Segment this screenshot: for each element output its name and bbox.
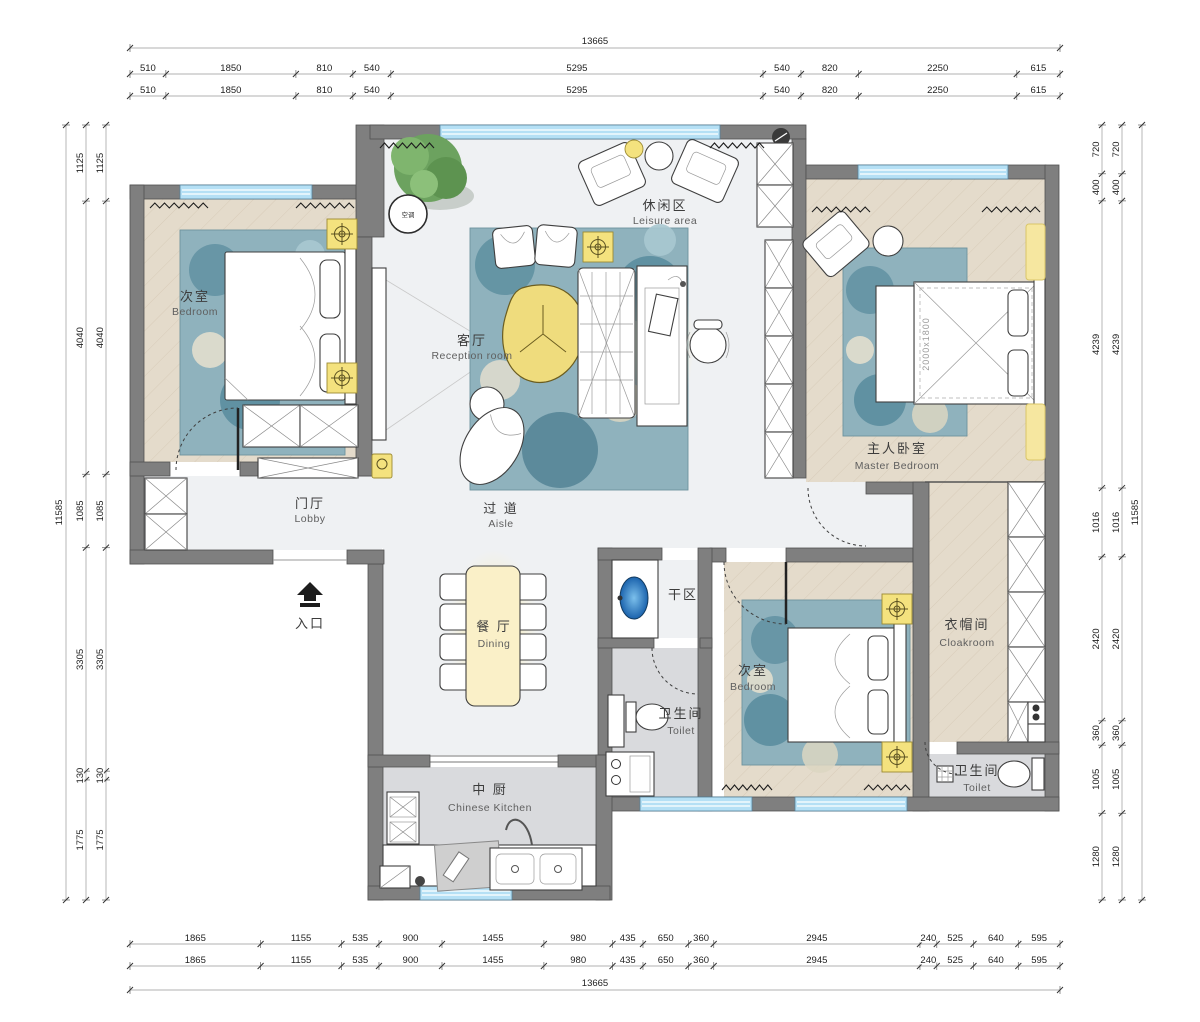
dim-label: 1775: [75, 829, 86, 850]
dim-label: 595: [1031, 933, 1047, 944]
ceiling-light-icon: [882, 594, 912, 624]
ac-unit-icon: 空调: [389, 195, 427, 233]
room-label-zh: 入口: [295, 616, 325, 631]
sliding-door: [430, 756, 558, 762]
dim-label: 510: [140, 85, 156, 96]
room-label-en: Lobby: [294, 513, 325, 525]
floor-plan-page: 2000x1800: [0, 0, 1200, 1022]
room-label-zh: 次室: [180, 289, 210, 304]
dim-label: 1455: [482, 933, 503, 944]
floor-plan-drawing: 2000x1800: [0, 0, 1200, 1022]
room-label-en: Master Bedroom: [855, 460, 940, 472]
dim-label: 1016: [1111, 512, 1122, 533]
dim-label: 535: [352, 933, 368, 944]
dim-label: 2945: [806, 933, 827, 944]
dim-label: 525: [947, 955, 963, 966]
room-label-zh: 中 厨: [472, 782, 508, 797]
room-label-en: Toilet: [667, 725, 695, 737]
dim-label: 5295: [566, 63, 587, 74]
bed-double: [914, 278, 1045, 408]
room-label-zh: 餐 厅: [476, 619, 512, 634]
ceiling-light-icon: [583, 232, 613, 262]
dim-label: 240: [920, 955, 936, 966]
entrance-arrow-icon: [297, 582, 323, 607]
dim-label: 810: [316, 85, 332, 96]
dim-label: 3305: [95, 649, 106, 670]
dim-label: 535: [352, 955, 368, 966]
window: [858, 165, 1008, 179]
dim-label: 1155: [291, 933, 311, 944]
dim-label: 640: [988, 955, 1004, 966]
room-label-zh: 卫生间: [954, 763, 999, 778]
dim-label: 615: [1030, 63, 1046, 74]
round-table: [873, 226, 903, 256]
dim-label: 1125: [75, 153, 86, 173]
window: [795, 797, 907, 811]
bench: [876, 286, 914, 402]
dim-label: 360: [1091, 725, 1102, 741]
dim-label: 2945: [806, 955, 827, 966]
ceiling-light-icon: [882, 742, 912, 772]
dim-label: 1775: [95, 829, 106, 850]
dim-label: 900: [403, 933, 419, 944]
ceiling-light-icon: [327, 363, 357, 393]
room-label-en: Bedroom: [730, 681, 776, 693]
dim-label: 360: [693, 955, 709, 966]
dim-label: 900: [403, 955, 419, 966]
dim-label: 360: [1111, 725, 1122, 741]
dim-label: 615: [1030, 85, 1046, 96]
dim-label: 1016: [1091, 512, 1102, 533]
wall-light-glow: [1026, 224, 1045, 280]
dim-label: 980: [570, 933, 586, 944]
dim-label: 4239: [1091, 334, 1102, 355]
dining-table: [466, 566, 520, 706]
stove: [387, 792, 419, 844]
dim-label: 540: [774, 85, 790, 96]
dim-label: 360: [693, 933, 709, 944]
dim-label: 4239: [1111, 334, 1122, 355]
dim-label: 810: [316, 63, 332, 74]
dim-label: 640: [988, 933, 1004, 944]
dim-label: 435: [620, 933, 636, 944]
room-label-en: Bedroom: [172, 306, 218, 318]
dim-label: 1280: [1091, 846, 1102, 867]
dim-label: 5295: [566, 85, 587, 96]
dim-label: 1005: [1111, 769, 1122, 790]
desk: [637, 266, 687, 426]
dim-label: 650: [658, 955, 674, 966]
dim-label: 510: [140, 63, 156, 74]
dim-label: 1155: [291, 955, 311, 966]
dim-label: 1455: [482, 955, 503, 966]
room-label-en: Reception room: [431, 350, 512, 362]
dim-label: 1085: [95, 500, 106, 521]
dim-label: 1850: [220, 85, 241, 96]
dim-label: 980: [570, 955, 586, 966]
washing-machine: [606, 752, 654, 796]
lounge-chair: [492, 225, 536, 269]
round-table: [645, 142, 673, 170]
room-label-en: Chinese Kitchen: [448, 802, 532, 814]
dim-label: 130: [75, 768, 86, 784]
dim-label: 820: [822, 63, 838, 74]
dim-label: 720: [1111, 141, 1122, 157]
wall-light-glow: [1026, 404, 1045, 460]
window: [180, 185, 312, 199]
wall-lamp-icon: [372, 454, 392, 478]
toilet-sink: [608, 695, 624, 747]
window: [640, 797, 752, 811]
tv-console: [372, 268, 386, 440]
dim-label: 11585: [54, 500, 65, 526]
room-label-zh: 客厅: [457, 333, 487, 348]
room-label-zh: 休闲区: [642, 198, 687, 213]
dim-label: 2250: [927, 85, 948, 96]
room-label-zh: 卫生间: [658, 706, 703, 721]
room-label-zh: 衣帽间: [944, 617, 989, 632]
room-label-en: Leisure area: [633, 215, 697, 227]
dim-label: 540: [364, 85, 380, 96]
dim-label: 1005: [1091, 769, 1102, 790]
room-label-zh: 门厅: [295, 496, 325, 511]
ac-label: 空调: [402, 210, 415, 219]
bed-size-label: 2000x1800: [921, 317, 931, 371]
dim-label: 595: [1031, 955, 1047, 966]
room-label-zh: 主人卧室: [867, 441, 927, 456]
dim-label: 820: [822, 85, 838, 96]
dim-label: 1125: [95, 153, 106, 173]
bed-double: [788, 624, 906, 746]
vanity-sink: [612, 560, 658, 638]
room-label-zh: 干区: [668, 587, 698, 602]
dim-label: 1865: [185, 933, 206, 944]
ceiling-light-icon: [327, 219, 357, 249]
dim-label: 2250: [927, 63, 948, 74]
room-label-zh: 次室: [738, 663, 768, 678]
dim-label: 1865: [185, 955, 206, 966]
room-label-en: Cloakroom: [939, 637, 994, 649]
room-label-en: Dining: [478, 638, 511, 650]
dim-label: 1280: [1111, 846, 1122, 867]
dim-label: 650: [658, 933, 674, 944]
cloakroom-appliance: [1028, 702, 1045, 742]
dim-label: 240: [920, 933, 936, 944]
sofa: [578, 268, 635, 418]
toilet-icon: [998, 758, 1044, 790]
dim-label: 400: [1091, 179, 1102, 195]
dim-label: 1085: [75, 500, 86, 521]
dim-label: 2420: [1091, 628, 1102, 649]
dim-label: 540: [364, 63, 380, 74]
dim-label: 2420: [1111, 628, 1122, 649]
dim-label: 435: [620, 955, 636, 966]
dim-label: 4040: [75, 327, 86, 348]
dim-label: 11585: [1130, 500, 1141, 526]
dim-label: 400: [1111, 179, 1122, 195]
dim-label: 540: [774, 63, 790, 74]
lounge-chair: [534, 224, 577, 267]
dim-label: 130: [95, 768, 106, 784]
dim-label: 13665: [582, 978, 608, 989]
ceiling-light-icon: [625, 140, 643, 158]
dim-label: 3305: [75, 649, 86, 670]
dim-label: 4040: [95, 327, 106, 348]
dim-label: 1850: [220, 63, 241, 74]
room-label-zh: 过 道: [483, 501, 519, 516]
window: [440, 125, 720, 139]
dim-label: 525: [947, 933, 963, 944]
dim-label: 720: [1091, 141, 1102, 157]
room-label-en: Toilet: [963, 782, 991, 794]
dim-label: 13665: [582, 36, 608, 47]
room-label-en: Aisle: [488, 518, 513, 530]
